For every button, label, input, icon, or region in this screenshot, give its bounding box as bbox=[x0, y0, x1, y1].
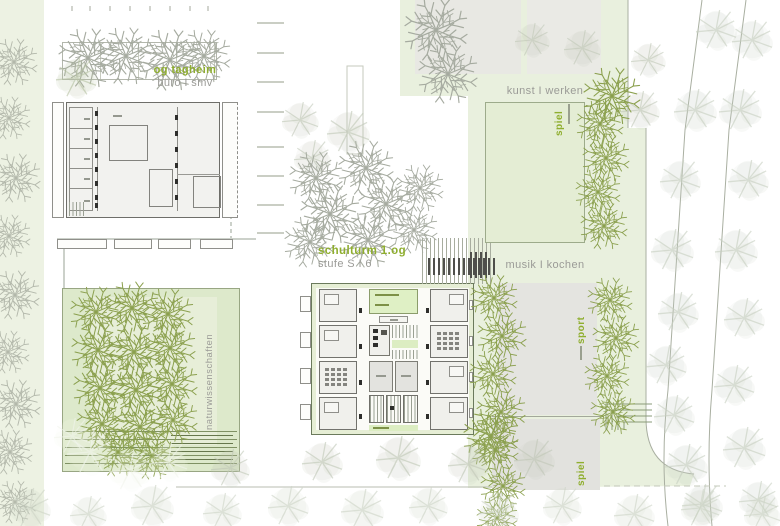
tree bbox=[621, 91, 660, 130]
plan-detail bbox=[437, 347, 441, 350]
tree bbox=[580, 132, 631, 183]
plan-detail bbox=[95, 153, 98, 158]
classroom bbox=[319, 325, 357, 358]
balcony bbox=[300, 368, 311, 384]
plan-detail bbox=[171, 459, 233, 460]
plan-detail bbox=[337, 383, 341, 386]
tree bbox=[651, 229, 694, 272]
balcony bbox=[469, 336, 473, 346]
plan-detail bbox=[390, 406, 394, 410]
naturwissenschaften-label: naturwissenschaften bbox=[204, 326, 215, 430]
plan-detail bbox=[359, 308, 362, 313]
plan-detail bbox=[65, 447, 237, 448]
balcony bbox=[469, 372, 473, 382]
plan-detail bbox=[437, 332, 441, 335]
plan-detail bbox=[343, 368, 347, 371]
tree bbox=[715, 229, 758, 272]
main-wing bbox=[66, 102, 220, 218]
og-tagheim-subtitle: büro I smv bbox=[148, 77, 222, 90]
tree bbox=[70, 496, 107, 526]
spiel-upper-label: spiel bbox=[554, 100, 565, 136]
planter-ticks bbox=[72, 6, 208, 11]
stair-cell bbox=[403, 395, 418, 423]
tree bbox=[10, 488, 51, 526]
plan-detail bbox=[84, 118, 90, 120]
tree bbox=[0, 151, 43, 204]
tiny-text bbox=[580, 346, 582, 360]
plan-detail bbox=[437, 332, 459, 350]
tree bbox=[723, 427, 766, 470]
balcony bbox=[300, 332, 311, 348]
plan-detail bbox=[325, 378, 329, 381]
plan-detail bbox=[449, 366, 464, 377]
plan-detail bbox=[95, 167, 98, 172]
plan-detail bbox=[325, 383, 329, 386]
plan-detail bbox=[455, 332, 459, 335]
plan-detail bbox=[65, 431, 237, 432]
schulturm-subtitle: stufe S I 6 bbox=[318, 258, 428, 271]
og-tagheim-title: og tagheim bbox=[148, 64, 222, 77]
tree bbox=[728, 160, 769, 201]
plan-detail bbox=[426, 308, 429, 313]
sport-label: sport bbox=[576, 288, 587, 344]
tree bbox=[696, 10, 737, 51]
tree bbox=[394, 162, 445, 213]
classroom bbox=[319, 361, 357, 394]
plan-detail bbox=[390, 319, 398, 321]
plan-detail bbox=[331, 373, 335, 376]
plan-detail bbox=[373, 343, 378, 347]
plan-detail bbox=[70, 168, 92, 169]
plan-detail bbox=[709, 0, 746, 526]
tree bbox=[376, 436, 421, 481]
plan-detail bbox=[70, 128, 92, 129]
plan-detail bbox=[324, 402, 339, 413]
spiel-lower-label: spiel bbox=[576, 444, 587, 486]
plan-detail bbox=[381, 330, 387, 335]
service-room bbox=[369, 325, 390, 356]
plan-detail bbox=[443, 347, 447, 350]
plan-detail bbox=[426, 414, 429, 419]
plan-detail bbox=[359, 344, 362, 349]
plan-detail bbox=[95, 195, 98, 200]
plan-detail bbox=[343, 373, 347, 376]
plan-detail bbox=[428, 258, 498, 275]
small-court-outline bbox=[347, 66, 363, 154]
plan-detail bbox=[455, 337, 459, 340]
tree bbox=[614, 494, 655, 526]
east-tower bbox=[222, 102, 238, 218]
site-box bbox=[200, 239, 233, 249]
site-plan: og tagheim büro I smv schulturm 1.og stu… bbox=[0, 0, 780, 526]
plan-detail bbox=[443, 332, 447, 335]
plan-detail bbox=[455, 347, 459, 350]
plan-detail bbox=[337, 368, 341, 371]
tree bbox=[719, 89, 762, 132]
tree bbox=[203, 493, 242, 526]
plan-detail bbox=[175, 179, 178, 184]
stair-hatch bbox=[392, 350, 418, 359]
classroom bbox=[319, 397, 357, 430]
balcony bbox=[300, 404, 311, 420]
tree bbox=[0, 268, 42, 321]
tree bbox=[682, 484, 723, 525]
plan-detail bbox=[95, 181, 98, 186]
tree bbox=[646, 345, 687, 386]
plan-detail bbox=[331, 368, 335, 371]
plan-detail bbox=[343, 383, 347, 386]
plan-detail bbox=[65, 455, 237, 456]
tree bbox=[448, 444, 489, 485]
plan-detail bbox=[324, 330, 339, 341]
plan-detail bbox=[437, 337, 441, 340]
stair-marks bbox=[470, 252, 487, 278]
tree bbox=[658, 292, 699, 333]
tree bbox=[475, 496, 519, 526]
plan-detail bbox=[331, 383, 335, 386]
tree bbox=[287, 149, 345, 207]
tree bbox=[0, 329, 31, 376]
campus-boundary-lines bbox=[628, 0, 694, 474]
green-verge-left bbox=[0, 0, 44, 526]
plan-detail bbox=[70, 148, 92, 149]
tree bbox=[0, 377, 43, 430]
plan-detail bbox=[375, 294, 399, 296]
plan-detail bbox=[84, 138, 90, 140]
balcony bbox=[300, 296, 311, 312]
plan-detail bbox=[449, 402, 464, 413]
plan-detail bbox=[606, 404, 652, 430]
tree bbox=[0, 95, 32, 142]
plan-detail bbox=[65, 439, 237, 440]
plan-detail bbox=[612, 410, 652, 430]
plan-detail bbox=[177, 174, 220, 175]
plan-detail bbox=[171, 443, 233, 444]
tree bbox=[356, 174, 416, 234]
plan-detail bbox=[84, 200, 90, 202]
schulturm-label: schulturm 1.og stufe S I 6 bbox=[318, 245, 428, 271]
stair-hatch bbox=[392, 325, 418, 338]
tree bbox=[732, 20, 773, 61]
plan-detail bbox=[449, 337, 453, 340]
tree bbox=[298, 182, 362, 246]
tree bbox=[654, 395, 695, 436]
tree bbox=[665, 444, 708, 487]
plan-detail bbox=[373, 427, 389, 429]
plan-detail bbox=[443, 342, 447, 345]
plan-detail bbox=[70, 188, 92, 189]
tree bbox=[409, 487, 448, 526]
plan-detail bbox=[337, 373, 341, 376]
tree bbox=[578, 200, 629, 251]
plan-detail bbox=[65, 463, 237, 464]
tree bbox=[0, 479, 38, 526]
tree bbox=[0, 36, 40, 87]
plan-detail bbox=[449, 294, 464, 305]
spiel-area-upper bbox=[485, 102, 585, 243]
plan-detail bbox=[624, 422, 652, 430]
plan-detail bbox=[375, 304, 389, 306]
tree bbox=[660, 160, 701, 201]
parking-marks bbox=[257, 23, 284, 233]
road-lines bbox=[664, 0, 746, 526]
tree bbox=[581, 65, 643, 127]
kunst-werken-label: kunst I werken bbox=[500, 85, 590, 98]
plan-detail bbox=[113, 115, 122, 117]
plan-detail bbox=[84, 158, 90, 160]
core-room bbox=[395, 361, 418, 392]
tree bbox=[294, 140, 331, 177]
plan-detail bbox=[331, 378, 335, 381]
tree bbox=[744, 496, 780, 526]
tree bbox=[327, 111, 370, 154]
tree bbox=[543, 487, 582, 526]
classroom bbox=[430, 361, 468, 394]
og-tagheim-building bbox=[52, 102, 238, 218]
plan-detail bbox=[325, 368, 347, 386]
tree bbox=[282, 102, 319, 139]
plan-detail bbox=[175, 163, 178, 168]
stair-hatch bbox=[69, 202, 84, 216]
plan-detail bbox=[376, 375, 386, 377]
plan-detail bbox=[95, 111, 98, 116]
plan-detail bbox=[171, 435, 233, 436]
og-tagheim-label: og tagheim büro I smv bbox=[148, 64, 222, 90]
green-strip bbox=[392, 340, 418, 348]
schulturm-title: schulturm 1.og bbox=[318, 245, 428, 258]
plan-detail bbox=[91, 297, 217, 445]
plan-detail bbox=[373, 336, 378, 340]
tree bbox=[336, 138, 396, 198]
room-column bbox=[69, 107, 93, 211]
tree bbox=[724, 298, 765, 339]
plan-detail bbox=[171, 451, 233, 452]
tree bbox=[0, 428, 34, 477]
tree bbox=[0, 213, 32, 260]
east-inner-room bbox=[193, 176, 221, 208]
plan-detail bbox=[401, 375, 411, 377]
plan-detail bbox=[337, 378, 341, 381]
tree bbox=[268, 486, 309, 526]
plan-detail bbox=[175, 131, 178, 136]
green-strip bbox=[369, 425, 418, 431]
plan-detail bbox=[449, 342, 453, 345]
tree bbox=[478, 492, 519, 526]
site-box bbox=[158, 239, 191, 249]
plan-detail bbox=[325, 368, 329, 371]
tree bbox=[739, 481, 778, 520]
stair-cell bbox=[369, 395, 384, 423]
plan-detail bbox=[95, 139, 98, 144]
kunst-werken-block bbox=[415, 0, 521, 74]
plan-detail bbox=[95, 203, 98, 208]
stair-cell bbox=[386, 395, 401, 423]
plan-detail bbox=[455, 342, 459, 345]
plan-detail bbox=[449, 332, 453, 335]
plan-detail bbox=[359, 414, 362, 419]
tree bbox=[681, 489, 720, 526]
musik-kochen-label: musik I kochen bbox=[497, 259, 593, 272]
wc-room bbox=[379, 316, 408, 323]
plan-detail bbox=[426, 380, 429, 385]
tree bbox=[302, 442, 343, 483]
site-box bbox=[114, 239, 152, 249]
hall-inner-room bbox=[149, 169, 173, 207]
plan-detail bbox=[359, 380, 362, 385]
core-room bbox=[369, 361, 393, 392]
classroom bbox=[430, 397, 468, 430]
plan-detail bbox=[343, 378, 347, 381]
classroom bbox=[319, 289, 357, 322]
plan-detail bbox=[618, 416, 652, 430]
plan-detail bbox=[443, 337, 447, 340]
tree bbox=[674, 89, 717, 132]
plan-detail bbox=[84, 178, 90, 180]
plan-detail bbox=[437, 342, 441, 345]
west-tower bbox=[52, 102, 64, 218]
plan-detail bbox=[325, 373, 329, 376]
terrace-steps-east bbox=[606, 404, 652, 430]
tiny-text bbox=[568, 104, 570, 124]
plan-detail bbox=[664, 0, 702, 526]
plan-detail bbox=[646, 128, 694, 474]
plan-detail bbox=[373, 329, 378, 333]
classroom bbox=[430, 325, 468, 358]
tree bbox=[590, 312, 641, 363]
site-box bbox=[57, 239, 107, 249]
plan-detail bbox=[175, 115, 178, 120]
hall-inner-room bbox=[109, 125, 148, 161]
plan-detail bbox=[175, 147, 178, 152]
plan-detail bbox=[426, 344, 429, 349]
plan-detail bbox=[324, 294, 339, 305]
plan-detail bbox=[95, 125, 98, 130]
classroom bbox=[430, 289, 468, 322]
tree bbox=[131, 485, 174, 526]
plan-detail bbox=[449, 347, 453, 350]
balcony bbox=[469, 300, 473, 310]
tree bbox=[341, 489, 384, 526]
balcony bbox=[469, 408, 473, 418]
schulturm-building bbox=[311, 283, 474, 435]
kunst-werken-block bbox=[527, 0, 601, 74]
tree bbox=[631, 43, 666, 78]
tree bbox=[714, 365, 755, 406]
plan-detail bbox=[175, 195, 178, 200]
green-room bbox=[369, 289, 418, 314]
